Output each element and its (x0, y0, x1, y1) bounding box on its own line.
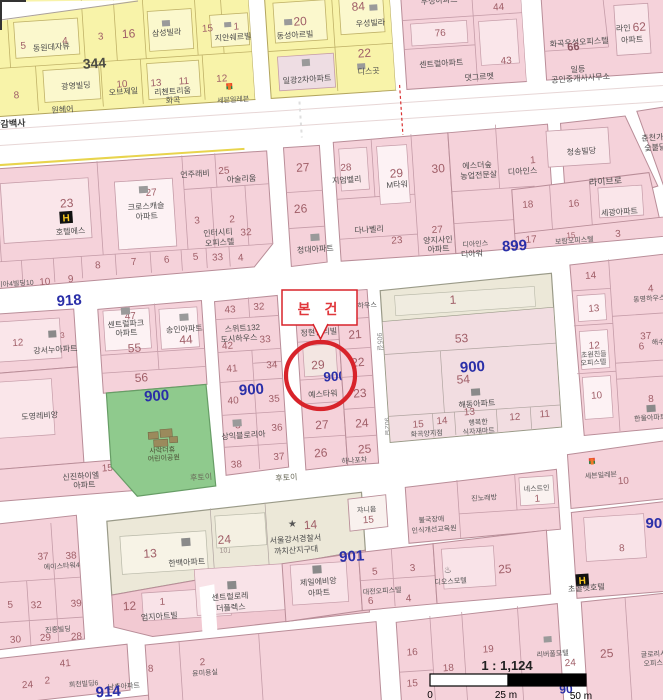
svg-text:901: 901 (645, 515, 663, 532)
svg-text:16: 16 (406, 647, 418, 659)
svg-text:광영빌딩: 광영빌딩 (61, 79, 91, 91)
svg-text:다나벨리: 다나벨리 (354, 223, 384, 235)
svg-text:12: 12 (12, 337, 24, 349)
svg-text:42: 42 (222, 340, 234, 352)
svg-text:41: 41 (226, 363, 238, 375)
svg-text:918: 918 (56, 291, 82, 310)
svg-text:디아인스: 디아인스 (508, 165, 538, 177)
svg-text:삼성빌라: 삼성빌라 (152, 26, 183, 38)
svg-text:900: 900 (144, 387, 170, 406)
svg-text:900: 900 (459, 358, 485, 377)
svg-text:24: 24 (217, 532, 232, 547)
svg-text:901: 901 (339, 547, 365, 566)
svg-text:10: 10 (591, 390, 603, 402)
svg-text:56: 56 (134, 370, 149, 385)
svg-text:38: 38 (65, 550, 77, 562)
svg-text:우성빌라: 우성빌라 (355, 17, 386, 29)
svg-text:0: 0 (427, 690, 433, 700)
svg-text:23: 23 (60, 196, 75, 211)
svg-text:화곡: 화곡 (165, 95, 180, 105)
svg-text:아파트: 아파트 (621, 34, 644, 45)
svg-text:아술리움: 아술리움 (226, 173, 256, 185)
svg-text:899: 899 (501, 237, 527, 256)
svg-text:33: 33 (212, 252, 224, 264)
svg-text:914: 914 (95, 683, 122, 700)
svg-text:39: 39 (70, 598, 82, 610)
svg-text:38: 38 (231, 459, 243, 471)
svg-text:76: 76 (434, 28, 446, 40)
svg-text:14: 14 (436, 415, 448, 427)
svg-text:15: 15 (412, 419, 424, 431)
svg-text:디아워: 디아워 (461, 248, 484, 259)
svg-text:언주래비: 언주래비 (180, 168, 210, 180)
svg-text:★: ★ (288, 519, 298, 531)
svg-text:44: 44 (179, 332, 194, 347)
svg-text:13: 13 (588, 303, 600, 315)
svg-text:32: 32 (253, 301, 265, 313)
svg-text:24: 24 (355, 416, 370, 431)
svg-text:예스타워: 예스타워 (308, 388, 338, 400)
svg-text:50 m: 50 m (570, 691, 592, 700)
svg-text:작감백사: 작감백사 (0, 117, 26, 130)
svg-text:아파트: 아파트 (115, 327, 138, 338)
svg-text:43: 43 (224, 304, 236, 316)
svg-text:11: 11 (539, 409, 551, 421)
svg-text:25 m: 25 m (495, 690, 517, 700)
svg-text:29: 29 (389, 166, 404, 181)
svg-text:23: 23 (391, 235, 403, 247)
svg-text:15: 15 (566, 231, 576, 241)
svg-text:후토이: 후토이 (190, 471, 213, 482)
svg-text:62: 62 (632, 19, 647, 34)
svg-text:아파트: 아파트 (73, 479, 96, 490)
svg-text:29: 29 (40, 632, 52, 644)
svg-text:26: 26 (314, 445, 329, 460)
svg-text:66: 66 (567, 41, 580, 54)
svg-text:14: 14 (585, 270, 597, 282)
svg-text:53: 53 (454, 331, 469, 346)
svg-text:27: 27 (431, 224, 443, 236)
svg-text:30: 30 (431, 161, 446, 176)
svg-text:원헤어: 원헤어 (51, 104, 74, 115)
svg-text:지엄벨리: 지엄벨리 (332, 174, 362, 186)
svg-text:32: 32 (30, 600, 42, 612)
svg-text:12: 12 (122, 599, 137, 614)
svg-text:18: 18 (442, 663, 454, 675)
svg-text:40: 40 (227, 395, 239, 407)
svg-text:41: 41 (59, 658, 71, 670)
svg-text:M타워: M타워 (386, 180, 408, 190)
svg-text:43: 43 (500, 55, 512, 67)
svg-text:13: 13 (143, 546, 158, 561)
svg-text:♨: ♨ (443, 565, 452, 576)
svg-text:더플렉스: 더플렉스 (216, 601, 246, 613)
svg-text:아파트: 아파트 (427, 243, 450, 254)
svg-text:15: 15 (202, 23, 214, 35)
svg-text:20: 20 (293, 14, 308, 29)
svg-text:디스곳: 디스곳 (357, 66, 380, 76)
svg-text:10: 10 (617, 476, 629, 488)
svg-text:10: 10 (39, 276, 51, 288)
svg-text:27: 27 (296, 160, 311, 175)
svg-text:16: 16 (568, 198, 580, 210)
svg-text:12: 12 (588, 340, 600, 352)
svg-text:댓그르멧: 댓그르멧 (464, 71, 494, 83)
svg-text:344: 344 (82, 54, 107, 72)
svg-text:1 : 1,124: 1 : 1,124 (481, 658, 533, 673)
svg-text:18: 18 (522, 199, 534, 211)
svg-text:24: 24 (564, 657, 576, 669)
svg-text:10」: 10」 (219, 547, 234, 555)
svg-text:19: 19 (482, 644, 494, 656)
svg-text:36: 36 (271, 422, 283, 434)
svg-text:55: 55 (127, 341, 142, 356)
svg-text:37: 37 (273, 451, 285, 463)
svg-text:34: 34 (266, 360, 278, 372)
svg-text:춘천가?: 춘천가? (641, 131, 663, 143)
svg-text:22: 22 (357, 46, 372, 61)
svg-text:아파트: 아파트 (308, 587, 331, 598)
svg-text:26: 26 (293, 201, 308, 216)
svg-text:35: 35 (268, 394, 280, 406)
svg-text:23: 23 (353, 386, 368, 401)
svg-text:28: 28 (71, 631, 83, 643)
svg-text:21: 21 (348, 327, 363, 342)
svg-text:12: 12 (216, 73, 228, 85)
svg-text:12: 12 (509, 412, 521, 424)
svg-text:25: 25 (358, 442, 373, 457)
svg-text:청송빌당: 청송빌당 (566, 145, 597, 157)
svg-text:H: H (62, 213, 70, 224)
svg-text:13: 13 (464, 407, 476, 419)
svg-text:라인: 라인 (616, 22, 631, 33)
svg-text:37: 37 (37, 551, 49, 563)
svg-text:15: 15 (362, 515, 374, 527)
svg-text:14: 14 (303, 517, 318, 532)
svg-text:900: 900 (238, 381, 264, 400)
svg-text:숯불닭: 숯불닭 (644, 141, 663, 152)
svg-text:44: 44 (493, 2, 505, 14)
svg-text:15: 15 (406, 678, 418, 690)
svg-text:인터시티: 인터시티 (203, 226, 233, 238)
svg-text:25: 25 (600, 646, 615, 661)
svg-text:30: 30 (10, 634, 22, 646)
svg-text:후토이: 후토이 (275, 472, 298, 483)
svg-text:32: 32 (240, 227, 252, 239)
svg-text:16: 16 (121, 26, 136, 41)
svg-text:본 건: 본 건 (298, 301, 343, 317)
svg-text:17: 17 (525, 234, 537, 246)
svg-text:1: 1 (449, 293, 457, 307)
svg-text:아파트: 아파트 (135, 210, 158, 221)
svg-text:84: 84 (351, 0, 366, 14)
svg-text:33: 33 (259, 334, 271, 346)
svg-text:25: 25 (498, 562, 513, 577)
svg-text:24: 24 (22, 679, 34, 691)
svg-text:27: 27 (315, 417, 330, 432)
svg-text:28: 28 (340, 162, 352, 174)
